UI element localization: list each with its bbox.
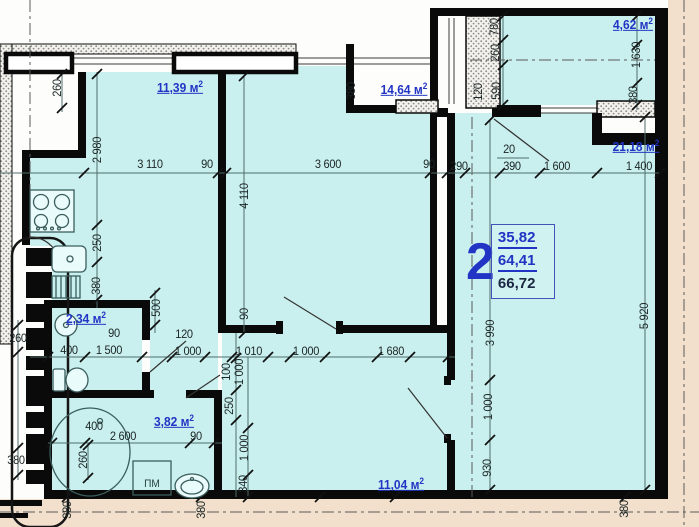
apartment-areas-box: 35,82 64,41 66,72 xyxy=(491,224,555,299)
floor-plan-svg xyxy=(0,0,699,527)
bath-sink-icon xyxy=(175,474,209,498)
stove-icon xyxy=(30,190,74,232)
secondary-area-value: 64,41 xyxy=(498,251,538,272)
rooms-layer xyxy=(30,16,660,490)
apartment-stamp: 2 35,82 64,41 66,72 xyxy=(466,224,555,299)
total-area-value: 66,72 xyxy=(498,274,538,293)
wc-basin-icon xyxy=(55,314,77,336)
living-area-value: 35,82 xyxy=(498,228,538,249)
toilet-icon xyxy=(53,368,88,392)
floor-plan: 3 110903 60090290203901 6001 4002602 980… xyxy=(0,0,699,527)
